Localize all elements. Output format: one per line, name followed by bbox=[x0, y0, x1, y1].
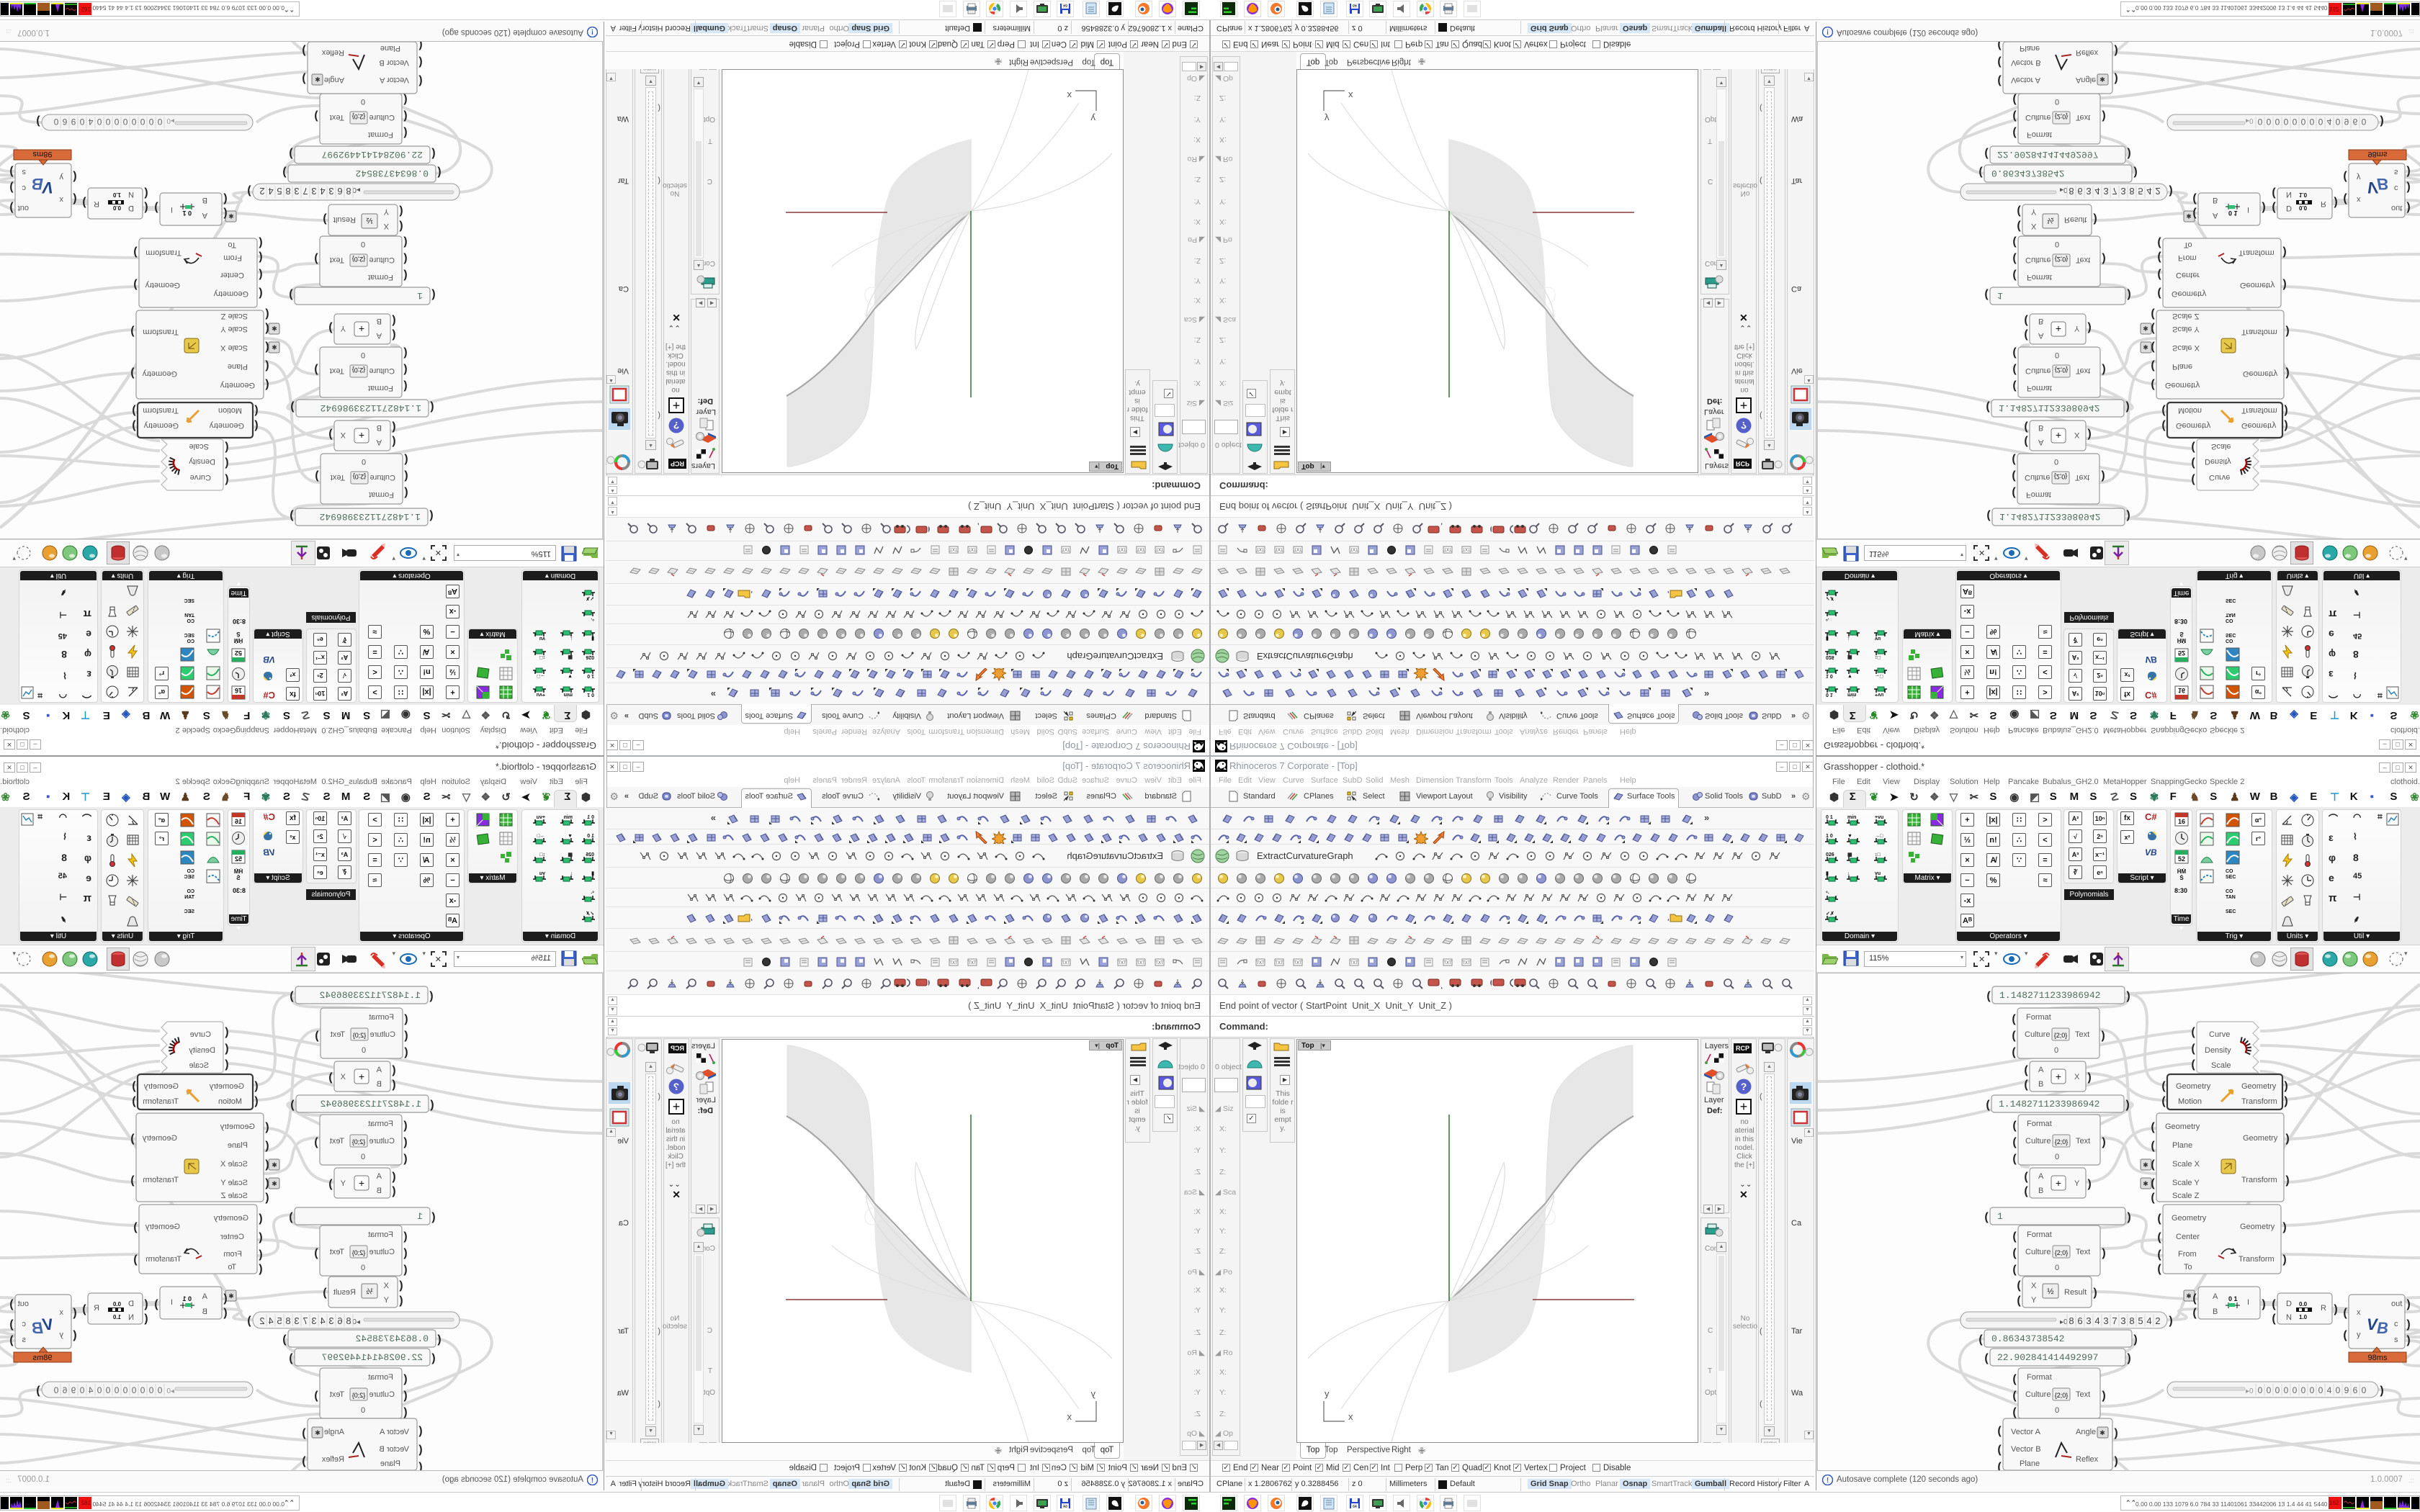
svg-text:): ) bbox=[132, 1080, 135, 1092]
svg-text:out: out bbox=[18, 204, 29, 212]
svg-text:?: ? bbox=[1741, 1081, 1747, 1092]
svg-text:✱: ✱ bbox=[315, 1429, 321, 1436]
svg-text:6: 6 bbox=[62, 117, 67, 127]
svg-text:5: 5 bbox=[277, 1315, 282, 1326]
svg-text:7: 7 bbox=[302, 1315, 308, 1326]
svg-text:A: A bbox=[376, 438, 382, 446]
svg-text:TXT: TXT bbox=[1256, 547, 1265, 552]
svg-text:): ) bbox=[328, 1178, 332, 1190]
svg-text:B: B bbox=[202, 196, 207, 204]
svg-text:1.0: 1.0 bbox=[2299, 192, 2308, 198]
svg-text:Culture: Culture bbox=[370, 473, 395, 482]
svg-text:): ) bbox=[328, 428, 332, 441]
svg-text:Text: Text bbox=[2075, 473, 2089, 482]
svg-text:y: y bbox=[1090, 113, 1095, 124]
svg-text:0: 0 bbox=[362, 457, 366, 466]
svg-text:1 0: 1 0 bbox=[587, 673, 594, 678]
svg-text:0: 0 bbox=[2318, 117, 2323, 127]
svg-text:Geometry: Geometry bbox=[220, 1122, 255, 1131]
svg-text:(: ( bbox=[404, 1046, 408, 1058]
svg-text:): ) bbox=[154, 1298, 158, 1310]
svg-text:Format: Format bbox=[368, 273, 393, 282]
svg-text:): ) bbox=[323, 213, 326, 225]
svg-text:): ) bbox=[314, 1390, 318, 1402]
svg-text:): ) bbox=[2285, 325, 2289, 338]
svg-text:(: ( bbox=[418, 1425, 423, 1437]
svg-text:22.902841414492997: 22.902841414492997 bbox=[322, 149, 423, 160]
svg-text:(: ( bbox=[404, 487, 408, 499]
svg-text:From: From bbox=[223, 253, 242, 262]
svg-text:X: X bbox=[2074, 431, 2080, 439]
svg-text:): ) bbox=[2169, 1315, 2172, 1327]
svg-text:): ) bbox=[2282, 1221, 2286, 1233]
svg-text:I: I bbox=[2247, 205, 2249, 214]
svg-text:Format: Format bbox=[368, 384, 393, 392]
svg-text:16: 16 bbox=[235, 687, 242, 694]
svg-text:1: 1 bbox=[1997, 1211, 2003, 1222]
svg-text:TXT: TXT bbox=[1443, 961, 1452, 966]
svg-text:▸0: ▸0 bbox=[166, 117, 174, 125]
svg-text:min: min bbox=[564, 815, 573, 820]
svg-text:(: ( bbox=[2151, 360, 2155, 372]
svg-text:TXT: TXT bbox=[1155, 547, 1164, 552]
svg-text:Scale X: Scale X bbox=[2172, 1160, 2200, 1169]
svg-text:): ) bbox=[314, 110, 318, 122]
svg-text:Transform: Transform bbox=[2238, 1255, 2275, 1264]
svg-text:(: ( bbox=[2343, 171, 2347, 183]
svg-text:): ) bbox=[2169, 185, 2172, 197]
svg-text:98ms: 98ms bbox=[2368, 150, 2388, 158]
svg-text:{2;0}: {2;0} bbox=[353, 1032, 367, 1039]
svg-text:(: ( bbox=[2192, 207, 2197, 220]
svg-text:x: x bbox=[1348, 1411, 1353, 1422]
svg-text:(: ( bbox=[1984, 148, 1989, 160]
svg-text:0 1: 0 1 bbox=[587, 815, 594, 820]
svg-text:): ) bbox=[2334, 197, 2337, 209]
svg-text:Geometry: Geometry bbox=[2240, 281, 2275, 289]
svg-text:✓✗: ✓✗ bbox=[586, 911, 594, 917]
svg-text:(: ( bbox=[1978, 166, 1983, 179]
svg-text:(: ( bbox=[392, 1185, 396, 1197]
svg-text:(: ( bbox=[1997, 75, 2002, 87]
svg-text:Y: Y bbox=[383, 1296, 389, 1305]
svg-text:A: A bbox=[376, 331, 382, 340]
svg-text:Format: Format bbox=[368, 1373, 393, 1382]
svg-text:(: ( bbox=[259, 1263, 263, 1275]
svg-text:9: 9 bbox=[2344, 1385, 2349, 1395]
svg-text:TXT: TXT bbox=[1275, 547, 1283, 552]
svg-text:B: B bbox=[377, 1187, 382, 1195]
svg-text:Culture: Culture bbox=[2025, 1390, 2051, 1399]
svg-text:Vector B: Vector B bbox=[379, 58, 409, 67]
svg-text:0: 0 bbox=[2301, 117, 2306, 127]
svg-text:(: ( bbox=[2157, 1263, 2161, 1275]
svg-text:(: ( bbox=[2272, 1298, 2276, 1310]
svg-text:x: x bbox=[1067, 90, 1072, 101]
svg-text:): ) bbox=[290, 401, 294, 413]
svg-text:(: ( bbox=[2012, 1120, 2017, 1132]
svg-text:(: ( bbox=[403, 94, 408, 106]
svg-text:Vector B: Vector B bbox=[379, 1445, 409, 1454]
svg-text:(: ( bbox=[403, 1264, 408, 1276]
svg-text:x: x bbox=[59, 1308, 63, 1317]
svg-text:): ) bbox=[328, 1071, 332, 1084]
svg-text:(: ( bbox=[2192, 1307, 2197, 1319]
svg-text:16: 16 bbox=[2178, 818, 2185, 825]
svg-text:1.1482711233986942: 1.1482711233986942 bbox=[321, 402, 421, 413]
svg-text:64: 64 bbox=[1063, 3, 1067, 7]
svg-text:(: ( bbox=[403, 110, 408, 122]
svg-text:(: ( bbox=[403, 1390, 408, 1402]
svg-text:(: ( bbox=[429, 990, 434, 1002]
svg-text:Format: Format bbox=[2026, 490, 2051, 499]
svg-text:!: ! bbox=[591, 1477, 593, 1485]
svg-text:): ) bbox=[2087, 428, 2091, 441]
svg-text:(: ( bbox=[2012, 110, 2017, 122]
svg-text:): ) bbox=[2127, 1352, 2130, 1364]
svg-text:2: 2 bbox=[259, 1315, 264, 1326]
svg-text:0: 0 bbox=[2284, 1385, 2289, 1395]
svg-text:Geometry: Geometry bbox=[2172, 289, 2207, 298]
svg-text:98ms: 98ms bbox=[32, 150, 52, 158]
svg-text:3: 3 bbox=[2103, 186, 2108, 197]
svg-text:Vector A: Vector A bbox=[379, 76, 409, 84]
svg-text:): ) bbox=[323, 1287, 326, 1299]
svg-text:): ) bbox=[2102, 110, 2105, 122]
svg-text:✱: ✱ bbox=[272, 1161, 277, 1169]
svg-text:c: c bbox=[22, 184, 26, 192]
svg-text:Motion: Motion bbox=[218, 1097, 242, 1106]
svg-text:0: 0 bbox=[2055, 1406, 2059, 1415]
svg-text:TXT: TXT bbox=[1350, 547, 1358, 552]
svg-text:↓: ↓ bbox=[1847, 871, 1850, 876]
svg-text:Geometry: Geometry bbox=[145, 281, 180, 289]
svg-text:{2;0}: {2;0} bbox=[2055, 366, 2069, 374]
svg-text:(: ( bbox=[392, 1171, 396, 1183]
svg-text:0.86343738542: 0.86343738542 bbox=[1991, 168, 2064, 179]
svg-text:Curve: Curve bbox=[190, 473, 211, 482]
svg-text:{2;0}: {2;0} bbox=[352, 366, 366, 374]
svg-text:✱: ✱ bbox=[2143, 1180, 2148, 1187]
svg-text:+: + bbox=[359, 1177, 364, 1189]
svg-text:): ) bbox=[2102, 1247, 2105, 1259]
svg-text:Format: Format bbox=[368, 1120, 393, 1128]
svg-text:(: ( bbox=[144, 1298, 148, 1310]
svg-text:Motion: Motion bbox=[218, 406, 242, 415]
svg-text:3: 3 bbox=[294, 1315, 299, 1326]
svg-text:): ) bbox=[130, 367, 134, 379]
svg-text:½: ½ bbox=[366, 1287, 372, 1296]
svg-text:To: To bbox=[2184, 1263, 2192, 1272]
svg-text:): ) bbox=[82, 1303, 86, 1315]
svg-text:): ) bbox=[2126, 510, 2130, 522]
svg-text:B: B bbox=[32, 1319, 43, 1337]
svg-text:Y: Y bbox=[2031, 207, 2037, 216]
svg-text:0: 0 bbox=[2362, 117, 2367, 127]
svg-text:Geometry: Geometry bbox=[220, 381, 255, 390]
svg-text:(: ( bbox=[2161, 1080, 2166, 1092]
svg-text:Text: Text bbox=[330, 113, 344, 122]
svg-text:3: 3 bbox=[2103, 1315, 2108, 1326]
svg-text:(: ( bbox=[392, 436, 396, 448]
svg-text:(: ( bbox=[430, 1099, 434, 1111]
svg-text:(: ( bbox=[2017, 220, 2021, 233]
svg-text:{2;0}: {2;0} bbox=[2055, 1392, 2069, 1399]
svg-text:✱: ✱ bbox=[228, 212, 234, 220]
svg-text:TXT: TXT bbox=[1275, 961, 1283, 966]
svg-text:Culture: Culture bbox=[2025, 113, 2051, 122]
svg-text:✱: ✱ bbox=[2186, 212, 2192, 220]
svg-text:✱: ✱ bbox=[2186, 1292, 2192, 1300]
svg-text:3: 3 bbox=[2086, 1315, 2091, 1326]
svg-text:0: 0 bbox=[97, 117, 102, 127]
svg-text:(: ( bbox=[430, 401, 434, 413]
svg-text:(: ( bbox=[1986, 510, 1991, 522]
svg-text:): ) bbox=[315, 1030, 318, 1042]
svg-text:): ) bbox=[2101, 470, 2105, 482]
svg-text:X: X bbox=[340, 431, 346, 439]
svg-text:(: ( bbox=[223, 193, 228, 205]
svg-text:A: A bbox=[2038, 1172, 2044, 1181]
svg-text:0 1: 0 1 bbox=[2228, 210, 2238, 217]
svg-text:): ) bbox=[2284, 1095, 2287, 1107]
svg-text:Geometry: Geometry bbox=[143, 1082, 179, 1091]
svg-text:Culture: Culture bbox=[369, 1248, 395, 1256]
svg-text:(: ( bbox=[223, 1307, 228, 1319]
svg-text:0: 0 bbox=[2310, 117, 2315, 127]
svg-text:+: + bbox=[2056, 1177, 2061, 1189]
svg-text:Vector B: Vector B bbox=[2011, 1445, 2041, 1454]
svg-text:Geometry: Geometry bbox=[2176, 421, 2211, 430]
svg-text:B: B bbox=[2377, 1319, 2388, 1337]
svg-text:): ) bbox=[2101, 1030, 2105, 1042]
svg-text:Center: Center bbox=[2176, 1233, 2200, 1241]
svg-text:): ) bbox=[289, 1211, 292, 1223]
svg-text:Format: Format bbox=[2027, 1230, 2052, 1239]
svg-text:): ) bbox=[289, 289, 292, 301]
svg-text:Format: Format bbox=[2026, 1013, 2051, 1022]
svg-text:7: 7 bbox=[2112, 186, 2117, 197]
svg-text:TXT: TXT bbox=[1443, 547, 1452, 552]
svg-text:4: 4 bbox=[2146, 186, 2151, 197]
svg-text:(: ( bbox=[399, 1295, 403, 1307]
svg-text:6: 6 bbox=[2077, 186, 2082, 197]
svg-text:Format: Format bbox=[369, 490, 394, 499]
svg-text:→□: →□ bbox=[1875, 673, 1883, 678]
svg-text:1: 1 bbox=[1997, 290, 2003, 301]
svg-text:A: A bbox=[376, 1066, 382, 1074]
svg-text:8: 8 bbox=[2129, 186, 2134, 197]
svg-text:Scale Y: Scale Y bbox=[2172, 1179, 2200, 1187]
svg-text:): ) bbox=[2087, 322, 2091, 334]
svg-text:Culture: Culture bbox=[370, 1030, 395, 1039]
svg-text:): ) bbox=[302, 45, 305, 57]
svg-text:0 1: 0 1 bbox=[182, 1295, 192, 1302]
svg-text:8: 8 bbox=[2129, 1315, 2134, 1326]
svg-text:(: ( bbox=[2012, 269, 2017, 282]
svg-text:TXT: TXT bbox=[1350, 961, 1358, 966]
svg-text:▮: ▮ bbox=[1826, 636, 1829, 641]
svg-text:+vu: +vu bbox=[537, 815, 545, 820]
svg-text:▼: ▼ bbox=[568, 834, 573, 839]
svg-text:0: 0 bbox=[2293, 1385, 2298, 1395]
svg-text:B: B bbox=[2213, 196, 2218, 204]
svg-text:(: ( bbox=[2192, 1292, 2197, 1305]
svg-text:Reflex: Reflex bbox=[321, 48, 344, 57]
svg-text:(: ( bbox=[2012, 1390, 2017, 1402]
svg-text:(: ( bbox=[431, 148, 436, 160]
svg-text:Text: Text bbox=[2076, 256, 2090, 264]
svg-text:TXT: TXT bbox=[1294, 961, 1302, 966]
svg-text:(: ( bbox=[265, 1140, 269, 1152]
svg-text:): ) bbox=[9, 181, 13, 194]
svg-text:→□: →□ bbox=[537, 834, 545, 839]
svg-text:Geometry: Geometry bbox=[2243, 1134, 2278, 1143]
svg-text:(: ( bbox=[259, 1212, 263, 1225]
svg-text:(: ( bbox=[2024, 436, 2028, 448]
svg-text:Culture: Culture bbox=[369, 113, 395, 122]
svg-text:): ) bbox=[289, 148, 292, 160]
svg-text:out: out bbox=[2391, 1300, 2402, 1308]
svg-text:6: 6 bbox=[2353, 117, 2358, 127]
svg-text:026: 026 bbox=[1826, 852, 1834, 858]
svg-text:(: ( bbox=[73, 171, 77, 183]
svg-text:): ) bbox=[2380, 115, 2383, 127]
svg-text:B: B bbox=[377, 1080, 382, 1089]
svg-text:y: y bbox=[2357, 173, 2361, 181]
svg-text:(: ( bbox=[225, 1026, 229, 1038]
svg-text:Density: Density bbox=[189, 1046, 215, 1055]
svg-text:TXT: TXT bbox=[1294, 547, 1302, 552]
svg-text:TXT: TXT bbox=[1137, 961, 1145, 966]
svg-text:Plane: Plane bbox=[2172, 362, 2192, 371]
svg-text:min: min bbox=[1847, 815, 1856, 820]
svg-text:B: B bbox=[32, 175, 43, 193]
svg-text:0: 0 bbox=[2055, 1264, 2059, 1272]
svg-text:Y: Y bbox=[2074, 1179, 2080, 1188]
svg-text:✕: ✕ bbox=[435, 955, 442, 964]
svg-text:▸0: ▸0 bbox=[2060, 1318, 2068, 1326]
svg-text:Transform: Transform bbox=[143, 1176, 179, 1184]
svg-text:(: ( bbox=[392, 421, 396, 433]
svg-text:(: ( bbox=[254, 1095, 259, 1107]
svg-text:min: min bbox=[1847, 692, 1856, 697]
svg-text:): ) bbox=[2334, 1303, 2337, 1315]
svg-text:0: 0 bbox=[53, 117, 58, 127]
svg-text:3: 3 bbox=[2120, 1315, 2125, 1326]
svg-text:TXT: TXT bbox=[1118, 547, 1126, 552]
svg-text:(: ( bbox=[225, 457, 229, 469]
svg-text:Reflex: Reflex bbox=[2076, 48, 2099, 57]
svg-text:X: X bbox=[340, 1073, 346, 1081]
svg-text:Geometry: Geometry bbox=[2241, 1082, 2277, 1091]
svg-text:3: 3 bbox=[328, 1315, 333, 1326]
svg-text:0 1: 0 1 bbox=[182, 210, 192, 217]
svg-text:1: 1 bbox=[417, 1211, 423, 1222]
svg-text:4: 4 bbox=[2094, 1315, 2099, 1326]
svg-text:?: ? bbox=[673, 1081, 680, 1092]
svg-text:R: R bbox=[94, 199, 99, 208]
svg-text:Culture: Culture bbox=[369, 366, 395, 375]
svg-text:0: 0 bbox=[361, 351, 365, 359]
svg-text:): ) bbox=[2285, 1174, 2289, 1187]
svg-text:): ) bbox=[247, 185, 251, 197]
svg-text:0.0: 0.0 bbox=[112, 204, 121, 211]
svg-text:s: s bbox=[22, 168, 26, 176]
svg-text:Plane: Plane bbox=[380, 1459, 400, 1468]
svg-text:3: 3 bbox=[2120, 186, 2125, 197]
svg-text:5: 5 bbox=[2138, 1315, 2143, 1326]
svg-text:52: 52 bbox=[235, 649, 242, 657]
svg-text:Scale: Scale bbox=[2211, 442, 2231, 451]
svg-text:Transform: Transform bbox=[145, 1255, 181, 1264]
svg-text:): ) bbox=[290, 510, 293, 522]
svg-text:Scale Y: Scale Y bbox=[220, 1179, 248, 1187]
svg-text:+: + bbox=[359, 323, 364, 335]
svg-text:B: B bbox=[2038, 1080, 2043, 1089]
svg-text:(: ( bbox=[2272, 202, 2276, 214]
svg-text:✕: ✕ bbox=[1978, 955, 1985, 964]
svg-text:✕: ✕ bbox=[435, 548, 442, 557]
svg-text:(: ( bbox=[399, 220, 403, 233]
svg-text:(: ( bbox=[259, 1231, 263, 1243]
svg-text:Angle: Angle bbox=[2076, 76, 2096, 84]
svg-text:4: 4 bbox=[2094, 186, 2099, 197]
svg-text:°·: °· bbox=[591, 891, 594, 896]
svg-text:TXT: TXT bbox=[968, 547, 977, 552]
svg-text:Angle: Angle bbox=[2076, 1428, 2096, 1436]
svg-text:TXT: TXT bbox=[1062, 961, 1070, 966]
svg-text:y: y bbox=[1325, 113, 1330, 124]
svg-text:(: ( bbox=[2024, 1079, 2028, 1091]
svg-text:(: ( bbox=[2151, 1121, 2155, 1133]
svg-text:1 0: 1 0 bbox=[1826, 834, 1833, 839]
svg-text:x: x bbox=[2357, 195, 2361, 204]
svg-text:): ) bbox=[328, 322, 332, 334]
svg-text:y: y bbox=[1325, 1388, 1330, 1399]
svg-text:(: ( bbox=[2012, 236, 2017, 248]
svg-text:): ) bbox=[314, 1247, 318, 1259]
svg-text:(: ( bbox=[2191, 441, 2195, 454]
svg-text:0: 0 bbox=[361, 240, 365, 248]
svg-text:Geometry: Geometry bbox=[209, 1082, 244, 1091]
svg-text:0: 0 bbox=[148, 117, 153, 127]
svg-text:I: I bbox=[171, 1298, 173, 1307]
svg-text:(: ( bbox=[259, 287, 263, 300]
svg-text:Scale Z: Scale Z bbox=[2172, 312, 2200, 320]
svg-text:?: ? bbox=[673, 420, 680, 431]
svg-text:Vector B: Vector B bbox=[2011, 58, 2041, 67]
svg-text:0: 0 bbox=[2293, 117, 2298, 127]
svg-text:): ) bbox=[2284, 1080, 2287, 1092]
svg-text:(: ( bbox=[403, 1247, 408, 1259]
svg-text:): ) bbox=[36, 115, 40, 127]
svg-text:Y: Y bbox=[383, 207, 389, 216]
svg-text:(: ( bbox=[2012, 1264, 2017, 1276]
svg-text:(: ( bbox=[2343, 193, 2347, 205]
svg-text:TXT: TXT bbox=[1118, 961, 1126, 966]
svg-text:Geometry: Geometry bbox=[142, 1134, 177, 1143]
svg-text:0: 0 bbox=[2258, 1385, 2263, 1395]
svg-text:{2;0}: {2;0} bbox=[2055, 1249, 2069, 1256]
svg-text:Text: Text bbox=[2076, 1248, 2090, 1256]
svg-text:To: To bbox=[2184, 240, 2192, 249]
svg-text:{2;0}: {2;0} bbox=[352, 256, 366, 263]
svg-text:x: x bbox=[59, 195, 63, 204]
svg-text:Result: Result bbox=[2064, 1288, 2087, 1297]
svg-text:!: ! bbox=[1827, 1477, 1829, 1485]
svg-text:✱: ✱ bbox=[272, 343, 277, 351]
